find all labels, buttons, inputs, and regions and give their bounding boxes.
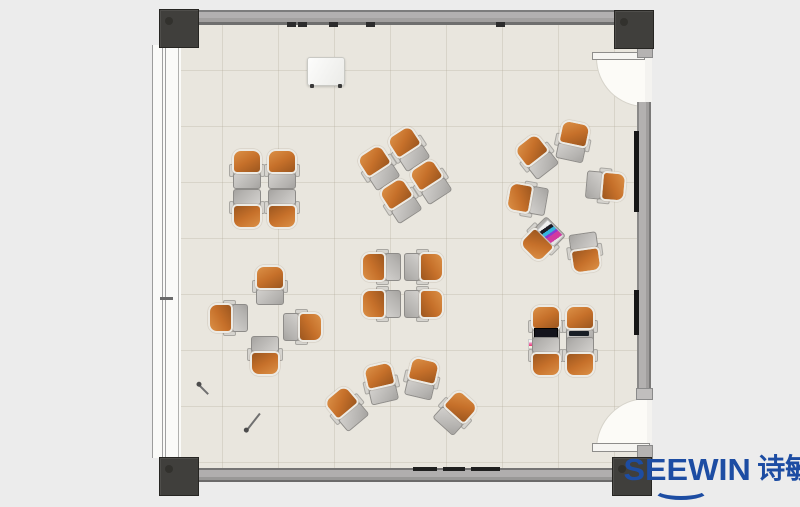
column-top-right bbox=[614, 10, 654, 49]
desk-chair-unit bbox=[361, 287, 401, 321]
chair-seat bbox=[255, 265, 285, 290]
desk-chair-unit bbox=[253, 265, 287, 305]
tablet-arm-desk bbox=[532, 337, 560, 353]
wall-mark bbox=[443, 467, 465, 471]
desk-chair-unit bbox=[404, 287, 444, 321]
chair-seat bbox=[531, 352, 561, 377]
wall-bottom bbox=[196, 468, 616, 482]
chair-seat bbox=[298, 312, 323, 342]
column-top-left bbox=[159, 9, 199, 48]
wall-screen-strip bbox=[634, 290, 639, 335]
tablet-arm-desk bbox=[404, 253, 420, 281]
window-wall-left bbox=[152, 45, 181, 458]
tablet-arm-desk bbox=[268, 189, 296, 205]
desk-chair-unit bbox=[230, 189, 264, 229]
chair-seat bbox=[505, 181, 535, 215]
wall-mark bbox=[366, 22, 375, 27]
column-bottom-left bbox=[159, 457, 199, 496]
chair-seat bbox=[419, 252, 444, 282]
chair-seat bbox=[232, 149, 262, 174]
chair-seat bbox=[565, 305, 595, 330]
mobile-whiteboard bbox=[307, 57, 345, 86]
desk-chair-unit bbox=[248, 336, 282, 376]
chair-seat bbox=[267, 204, 297, 229]
desk-chair-unit bbox=[585, 167, 628, 204]
tablet-arm-desk bbox=[251, 336, 279, 352]
wall-right bbox=[637, 102, 651, 398]
brand-logo-cjk: 诗敏 bbox=[757, 453, 800, 484]
wall-mark bbox=[496, 22, 505, 27]
desk-chair-unit bbox=[283, 310, 323, 344]
brand-logo-smile-icon bbox=[653, 480, 709, 500]
chair-seat bbox=[267, 149, 297, 174]
chair-seat bbox=[208, 303, 233, 333]
tablet-arm-desk bbox=[385, 290, 401, 318]
closed-laptop bbox=[569, 331, 589, 336]
tablet-arm-desk bbox=[385, 253, 401, 281]
desk-chair-unit bbox=[563, 337, 597, 377]
chair-seat bbox=[569, 246, 602, 275]
tablet-arm-desk bbox=[233, 189, 261, 205]
tablet-arm-desk bbox=[268, 173, 296, 189]
chair-seat bbox=[361, 289, 386, 319]
tablet-arm-desk bbox=[566, 337, 594, 353]
wall-mark bbox=[287, 22, 296, 27]
desk-chair-unit bbox=[265, 189, 299, 229]
chair-seat bbox=[565, 352, 595, 377]
wall-top bbox=[196, 10, 614, 25]
tablet-arm-desk bbox=[232, 304, 248, 332]
desk-chair-unit bbox=[208, 301, 248, 335]
window-mullion-tick bbox=[160, 297, 173, 300]
wall-mark bbox=[471, 467, 500, 471]
desk-chair-unit bbox=[265, 149, 299, 189]
tablet-arm-desk bbox=[256, 289, 284, 305]
chair-seat bbox=[600, 171, 628, 203]
wall-end-cap bbox=[636, 388, 653, 400]
brand-logo: SEEWIN诗敏 bbox=[626, 447, 800, 488]
desk-chair-unit bbox=[230, 149, 264, 189]
desk-chair-unit bbox=[361, 250, 401, 284]
desk-chair-unit bbox=[565, 231, 604, 275]
wall-mark bbox=[329, 22, 338, 27]
desk-chair-unit bbox=[529, 337, 563, 377]
chair-seat bbox=[232, 204, 262, 229]
chair-seat bbox=[419, 289, 444, 319]
desk-chair-unit bbox=[404, 250, 444, 284]
chair-seat bbox=[361, 252, 386, 282]
tablet-arm-desk bbox=[283, 313, 299, 341]
chair-seat bbox=[531, 305, 561, 330]
floorplan-stage: SEEWIN诗敏 bbox=[0, 0, 800, 507]
wall-mark bbox=[413, 467, 437, 471]
wall-mark bbox=[298, 22, 307, 27]
wall-screen-strip bbox=[634, 131, 639, 212]
chair-seat bbox=[250, 351, 280, 376]
tablet-arm-desk bbox=[233, 173, 261, 189]
tablet-arm-desk bbox=[404, 290, 420, 318]
